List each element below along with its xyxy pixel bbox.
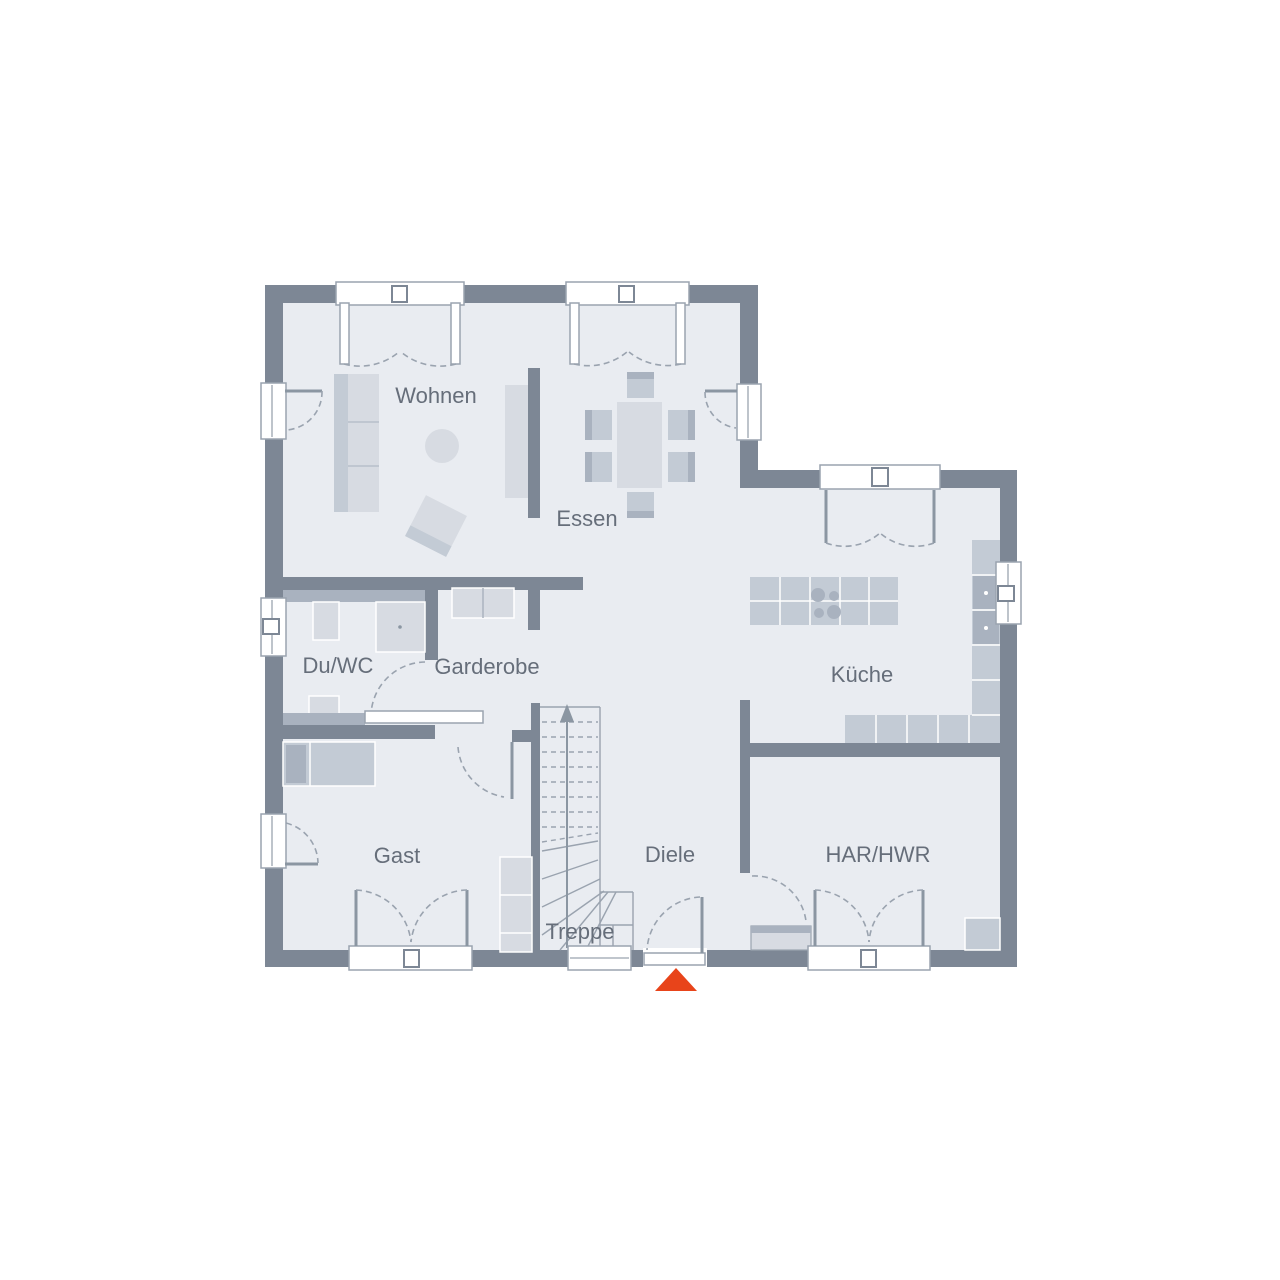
window-duwc-left	[261, 598, 286, 656]
sink	[313, 602, 339, 640]
label-garderobe: Garderobe	[434, 654, 539, 679]
label-diele: Diele	[645, 842, 695, 867]
shutter-symbol	[998, 586, 1014, 601]
coffee-table	[425, 429, 459, 463]
label-gast: Gast	[374, 843, 420, 868]
shutter-symbol	[392, 286, 407, 302]
label-har: HAR/HWR	[825, 842, 930, 867]
pillow	[286, 745, 306, 783]
shutter-symbol	[872, 468, 888, 486]
label-duwc: Du/WC	[303, 653, 374, 678]
label-treppe: Treppe	[546, 919, 615, 944]
bath-counter	[283, 590, 425, 602]
window-treppe	[568, 946, 631, 970]
sofa-backrest	[334, 374, 348, 512]
tv-wall	[528, 368, 540, 518]
shutter-symbol	[619, 286, 634, 302]
shutter-symbol	[263, 619, 279, 634]
shutter-symbol	[404, 950, 419, 967]
floor-plan-page: Wohnen Essen Du/WC Garderobe Küche Gast …	[0, 0, 1280, 1280]
floor-plan-drawing: Wohnen Essen Du/WC Garderobe Küche Gast …	[0, 0, 1280, 1280]
washer	[965, 918, 1000, 950]
wardrobe-furniture	[452, 588, 514, 618]
hall-cabinet	[500, 857, 532, 952]
sofa	[348, 374, 379, 512]
entrance-arrow-icon	[655, 968, 697, 991]
label-wohnen: Wohnen	[395, 383, 477, 408]
label-kueche: Küche	[831, 662, 893, 687]
sideboard	[505, 385, 528, 498]
label-essen: Essen	[556, 506, 617, 531]
bath-shelf	[283, 713, 365, 725]
shutter-symbol	[861, 950, 876, 967]
window-kueche-right	[996, 562, 1021, 624]
dining-table	[617, 402, 662, 488]
